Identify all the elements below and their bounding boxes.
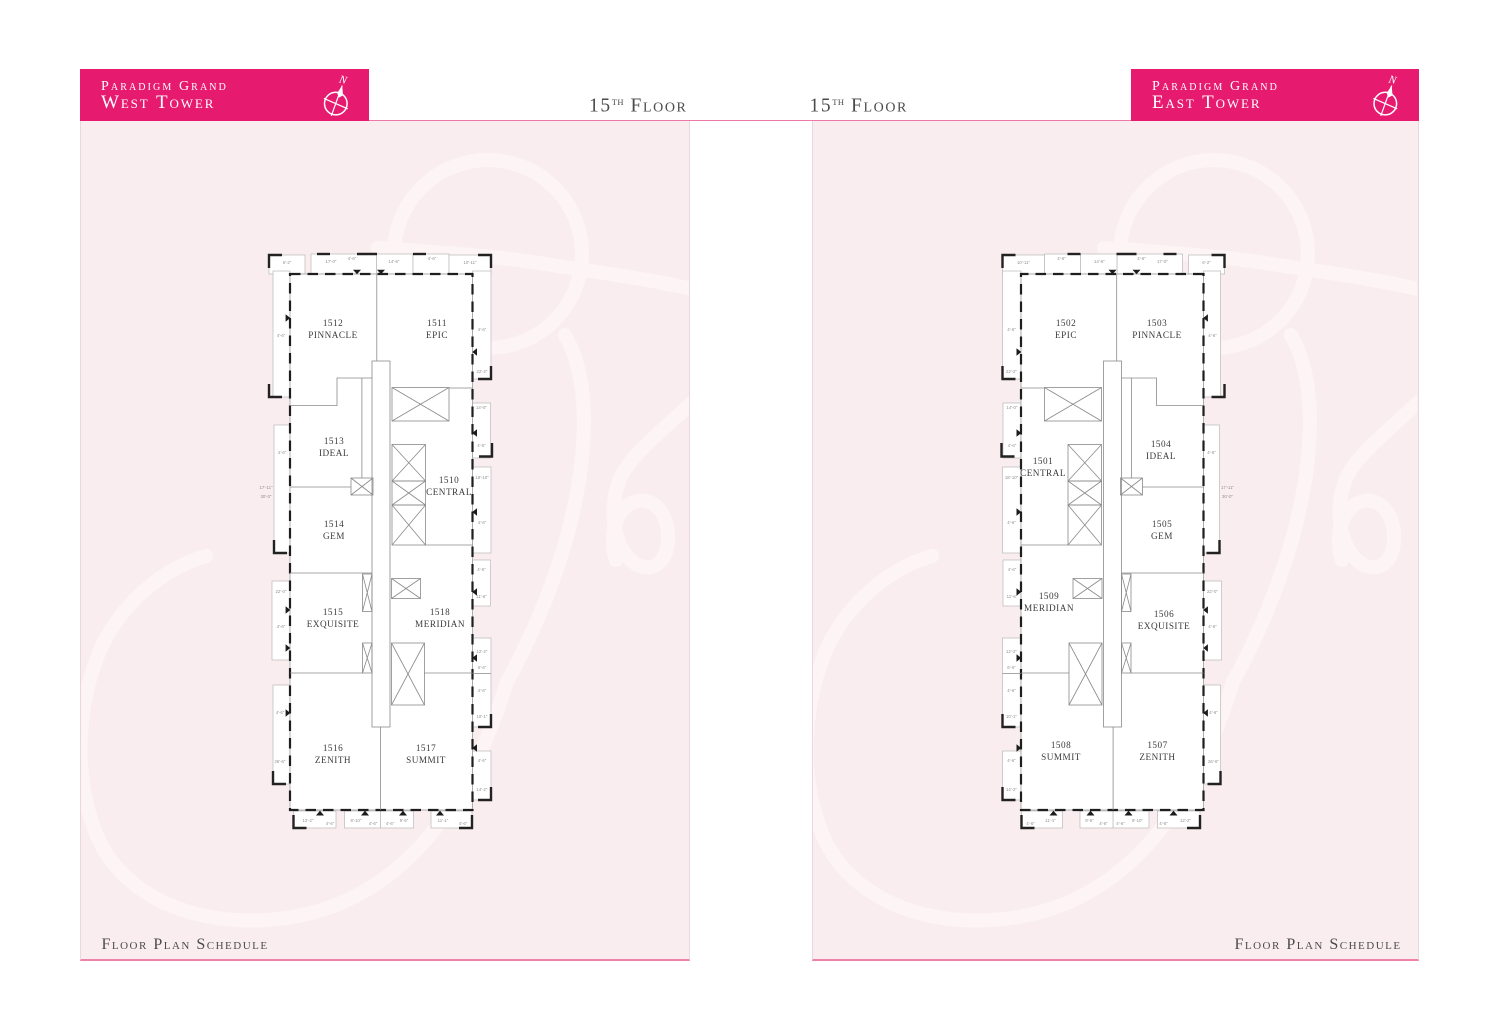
svg-text:SUMMIT: SUMMIT	[406, 755, 446, 765]
svg-text:12'-2": 12'-2"	[1006, 649, 1017, 654]
svg-text:4'-6": 4'-6"	[1007, 758, 1016, 763]
svg-text:12'-2": 12'-2"	[303, 818, 314, 823]
svg-text:14'-0": 14'-0"	[476, 405, 487, 410]
svg-text:EXQUISITE: EXQUISITE	[1138, 621, 1190, 631]
svg-text:GEM: GEM	[323, 531, 345, 541]
svg-text:CENTRAL: CENTRAL	[426, 487, 472, 497]
svg-text:14'-0": 14'-0"	[1007, 405, 1018, 410]
svg-text:9'-5": 9'-5"	[1085, 818, 1094, 823]
svg-text:22'-0": 22'-0"	[276, 589, 287, 594]
svg-text:1503: 1503	[1147, 318, 1167, 328]
svg-text:30'-0": 30'-0"	[1222, 494, 1233, 499]
svg-text:1510: 1510	[439, 475, 459, 485]
svg-text:10'-1": 10'-1"	[477, 714, 488, 719]
svg-text:6'-6": 6'-6"	[1007, 665, 1016, 670]
svg-text:4'-6": 4'-6"	[478, 327, 487, 332]
svg-text:10'-1": 10'-1"	[1006, 714, 1017, 719]
svg-text:4'-6": 4'-6"	[1057, 256, 1066, 261]
svg-text:4'-6": 4'-6"	[459, 821, 468, 826]
svg-text:MERIDIAN: MERIDIAN	[415, 619, 465, 629]
svg-text:1502: 1502	[1056, 318, 1076, 328]
svg-text:1514: 1514	[324, 519, 344, 529]
svg-text:MERIDIAN: MERIDIAN	[1024, 603, 1074, 613]
svg-text:ZENITH: ZENITH	[1139, 752, 1175, 762]
svg-text:12'-2": 12'-2"	[477, 649, 488, 654]
svg-text:17'-0": 17'-0"	[326, 259, 337, 264]
svg-text:4'-6": 4'-6"	[428, 256, 437, 261]
svg-text:4'-6": 4'-6"	[1207, 450, 1216, 455]
svg-text:1518: 1518	[430, 607, 450, 617]
svg-text:14'-2": 14'-2"	[477, 787, 488, 792]
svg-text:4'-6": 4'-6"	[277, 624, 286, 629]
svg-text:4'-6": 4'-6"	[1008, 443, 1017, 448]
svg-text:26'-6": 26'-6"	[1208, 759, 1219, 764]
svg-text:6'-2": 6'-2"	[1202, 260, 1211, 265]
svg-text:4'-6": 4'-6"	[369, 821, 378, 826]
svg-text:26'-6": 26'-6"	[275, 759, 286, 764]
svg-text:17'-0": 17'-0"	[1157, 259, 1168, 264]
svg-text:17'-11": 17'-11"	[1221, 485, 1234, 490]
svg-text:PINNACLE: PINNACLE	[1132, 330, 1181, 340]
svg-text:9'-5": 9'-5"	[400, 818, 409, 823]
svg-text:EXQUISITE: EXQUISITE	[307, 619, 359, 629]
svg-text:4'-6": 4'-6"	[277, 333, 286, 338]
svg-text:4'-6": 4'-6"	[278, 450, 287, 455]
svg-text:4'-6": 4'-6"	[326, 821, 335, 826]
svg-text:12'-2": 12'-2"	[1180, 818, 1191, 823]
svg-text:4'-6": 4'-6"	[478, 520, 487, 525]
svg-text:22'-2": 22'-2"	[1006, 369, 1017, 374]
svg-text:4'-6": 4'-6"	[1208, 333, 1217, 338]
svg-text:4'-6": 4'-6"	[1159, 821, 1168, 826]
svg-text:1507: 1507	[1147, 740, 1167, 750]
svg-text:1509: 1509	[1039, 591, 1059, 601]
svg-text:GEM: GEM	[1151, 531, 1173, 541]
svg-text:11'-1": 11'-1"	[1045, 818, 1056, 823]
svg-text:4'-6": 4'-6"	[1026, 821, 1035, 826]
svg-text:4'-6": 4'-6"	[1208, 624, 1217, 629]
svg-text:18'-10": 18'-10"	[475, 475, 489, 480]
svg-text:SUMMIT: SUMMIT	[1041, 752, 1081, 762]
svg-text:ZENITH: ZENITH	[315, 755, 351, 765]
svg-text:4'-6": 4'-6"	[1008, 567, 1017, 572]
svg-text:4'-6": 4'-6"	[1007, 520, 1016, 525]
svg-text:22'-0": 22'-0"	[1207, 589, 1218, 594]
svg-text:EPIC: EPIC	[426, 330, 448, 340]
svg-text:17'-11": 17'-11"	[259, 485, 272, 490]
svg-text:8'-10": 8'-10"	[351, 818, 362, 823]
svg-text:10'-11": 10'-11"	[1017, 260, 1030, 265]
svg-text:1505: 1505	[1152, 519, 1172, 529]
svg-text:4'-6": 4'-6"	[1099, 821, 1108, 826]
svg-text:6'-2": 6'-2"	[283, 260, 292, 265]
svg-text:4'-6": 4'-6"	[1116, 821, 1125, 826]
svg-text:4'-6": 4'-6"	[276, 710, 285, 715]
svg-text:30'-0": 30'-0"	[261, 494, 272, 499]
svg-text:1501: 1501	[1033, 456, 1053, 466]
svg-text:6'-6": 6'-6"	[478, 665, 487, 670]
svg-text:11'-1": 11'-1"	[438, 818, 449, 823]
svg-text:1506: 1506	[1154, 609, 1174, 619]
svg-text:4'-6": 4'-6"	[478, 758, 487, 763]
svg-text:4'-6": 4'-6"	[1137, 256, 1146, 261]
svg-text:1513: 1513	[324, 436, 344, 446]
svg-text:22'-2": 22'-2"	[477, 369, 488, 374]
svg-text:8'-10": 8'-10"	[1132, 818, 1143, 823]
svg-text:4'-6": 4'-6"	[348, 256, 357, 261]
svg-text:14'-6": 14'-6"	[389, 259, 400, 264]
svg-text:14'-2": 14'-2"	[1006, 787, 1017, 792]
svg-text:IDEAL: IDEAL	[1146, 451, 1176, 461]
svg-text:4'-6": 4'-6"	[386, 821, 395, 826]
svg-text:4'-6": 4'-6"	[1007, 327, 1016, 332]
svg-text:11'-6": 11'-6"	[1007, 594, 1018, 599]
svg-text:1511: 1511	[427, 318, 447, 328]
svg-text:4'-6": 4'-6"	[477, 443, 486, 448]
svg-text:18'-10": 18'-10"	[1005, 475, 1019, 480]
svg-text:1508: 1508	[1051, 740, 1071, 750]
svg-text:14'-6": 14'-6"	[1094, 259, 1105, 264]
svg-text:1516: 1516	[323, 743, 343, 753]
svg-text:11'-6": 11'-6"	[476, 594, 487, 599]
svg-text:1515: 1515	[323, 607, 343, 617]
svg-text:EPIC: EPIC	[1055, 330, 1077, 340]
svg-text:PINNACLE: PINNACLE	[308, 330, 357, 340]
svg-text:4'-6": 4'-6"	[478, 688, 487, 693]
svg-text:CENTRAL: CENTRAL	[1020, 468, 1066, 478]
svg-text:1517: 1517	[416, 743, 436, 753]
svg-text:4'-6": 4'-6"	[1209, 710, 1218, 715]
svg-text:10'-11": 10'-11"	[463, 260, 476, 265]
svg-text:4'-6": 4'-6"	[477, 567, 486, 572]
svg-text:1504: 1504	[1151, 439, 1171, 449]
svg-text:1512: 1512	[323, 318, 343, 328]
svg-text:IDEAL: IDEAL	[319, 448, 349, 458]
svg-text:4'-6": 4'-6"	[1007, 688, 1016, 693]
